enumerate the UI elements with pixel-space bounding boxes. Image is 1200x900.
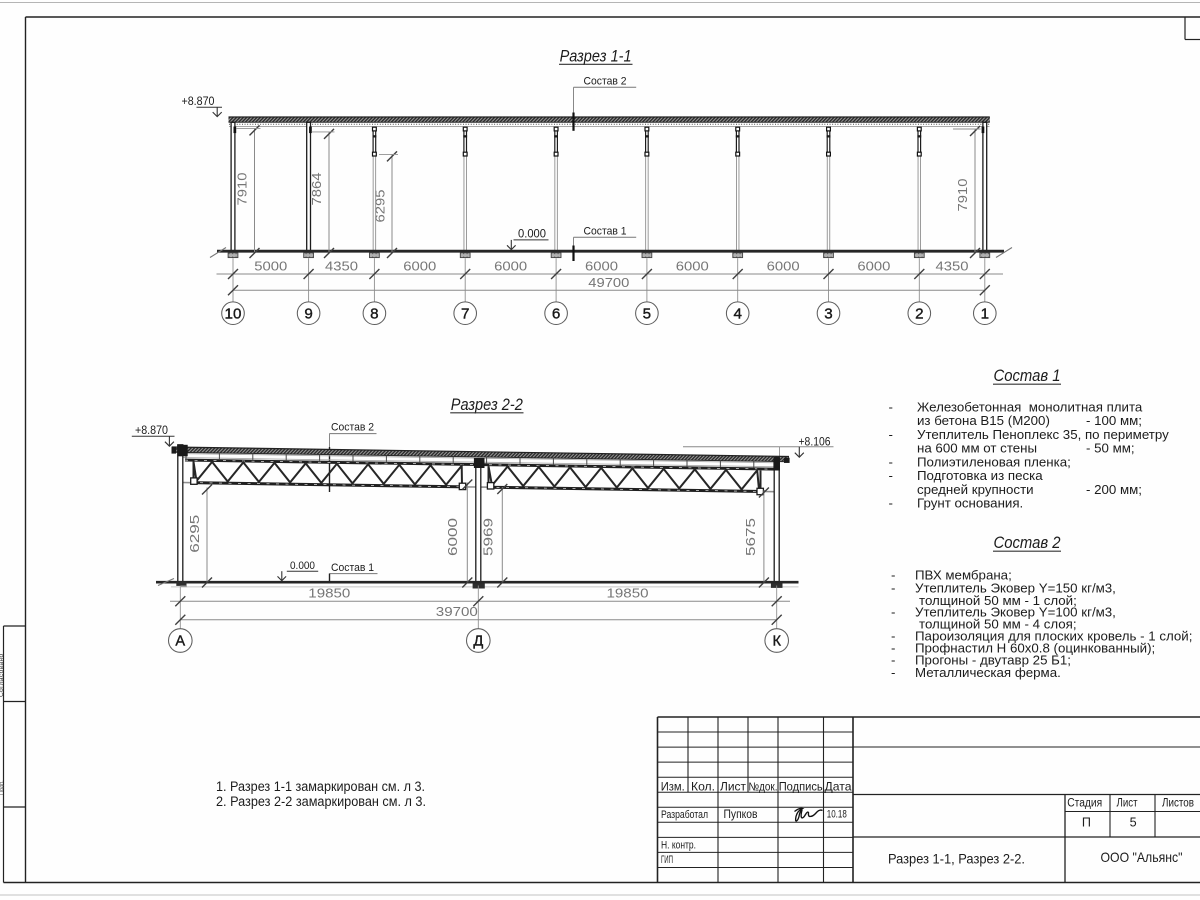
svg-text:из бетона В15 (М200): из бетона В15 (М200): [917, 413, 1050, 428]
svg-text:+8.106: +8.106: [799, 434, 831, 448]
svg-text:5969: 5969: [481, 518, 495, 556]
svg-text:-: -: [889, 468, 893, 483]
svg-text:6000: 6000: [767, 260, 800, 274]
svg-text:3: 3: [824, 306, 832, 323]
svg-text:- 100 мм;: - 100 мм;: [1086, 413, 1142, 428]
svg-text:5675: 5675: [744, 518, 758, 556]
svg-text:6000: 6000: [857, 260, 890, 274]
svg-text:Изм.: Изм.: [661, 780, 685, 793]
svg-text:6295: 6295: [374, 190, 388, 223]
svg-text:1: 1: [981, 306, 989, 323]
svg-text:К: К: [772, 634, 781, 650]
svg-text:4350: 4350: [936, 260, 969, 274]
svg-text:Лист: Лист: [720, 780, 747, 793]
svg-text:2: 2: [915, 306, 923, 323]
svg-text:ГИП: ГИП: [661, 854, 673, 866]
svg-text:- 50 мм;: - 50 мм;: [1086, 441, 1135, 456]
svg-text:Стадия: Стадия: [1067, 798, 1102, 810]
svg-text:А: А: [175, 634, 185, 650]
svg-text:0.000: 0.000: [290, 560, 315, 572]
svg-text:7: 7: [461, 306, 469, 323]
svg-text:39700: 39700: [436, 605, 478, 619]
svg-text:Разрез 2-2: Разрез 2-2: [451, 395, 524, 414]
svg-text:-: -: [889, 427, 893, 442]
svg-text:6000: 6000: [585, 260, 618, 274]
svg-text:Н. контр.: Н. контр.: [661, 840, 696, 852]
svg-text:Состав 2: Состав 2: [994, 533, 1061, 552]
svg-text:Металлическая ферма.: Металлическая ферма.: [915, 665, 1061, 680]
svg-text:-: -: [889, 496, 893, 511]
svg-text:Согласовано: Согласовано: [0, 654, 5, 697]
svg-text:6295: 6295: [188, 515, 202, 553]
svg-text:2. Разрез 2-2 замаркирован см.: 2. Разрез 2-2 замаркирован см. л 3.: [216, 794, 426, 809]
svg-text:4350: 4350: [325, 260, 358, 274]
svg-text:10: 10: [225, 306, 242, 323]
svg-text:+8.870: +8.870: [135, 423, 168, 437]
svg-text:7864: 7864: [310, 173, 324, 206]
svg-text:+8.870: +8.870: [182, 94, 215, 108]
svg-text:5: 5: [643, 306, 651, 323]
svg-text:-: -: [889, 400, 893, 415]
svg-text:19850: 19850: [308, 587, 350, 601]
svg-text:Листов: Листов: [1162, 798, 1194, 810]
svg-text:Состав 2: Состав 2: [331, 422, 374, 434]
svg-text:0.000: 0.000: [518, 227, 546, 240]
svg-text:Кол.: Кол.: [691, 780, 715, 793]
svg-text:Грунт основания.: Грунт основания.: [917, 496, 1023, 511]
svg-text:10.18: 10.18: [827, 809, 847, 821]
svg-text:8: 8: [370, 306, 378, 323]
svg-text:7910: 7910: [236, 173, 250, 206]
svg-text:ООО "Альянс": ООО "Альянс": [1101, 850, 1183, 865]
svg-text:Разрез 1-1: Разрез 1-1: [560, 47, 632, 66]
svg-text:-: -: [891, 580, 895, 595]
svg-text:Подп.: Подп.: [0, 780, 5, 795]
svg-text:9: 9: [304, 306, 312, 323]
svg-text:Разработал: Разработал: [661, 809, 708, 821]
svg-text:Состав 2: Состав 2: [584, 75, 627, 87]
svg-text:П: П: [1082, 815, 1091, 829]
svg-text:49700: 49700: [588, 276, 629, 290]
svg-text:- 200 мм;: - 200 мм;: [1086, 482, 1142, 497]
svg-text:5000: 5000: [254, 260, 287, 274]
svg-text:Подпись: Подпись: [779, 780, 823, 793]
svg-text:-: -: [891, 665, 895, 680]
svg-text:Разрез 1-1, Разрез 2-2.: Разрез 1-1, Разрез 2-2.: [888, 852, 1025, 867]
svg-text:Д: Д: [473, 634, 483, 650]
svg-text:6000: 6000: [403, 260, 436, 274]
svg-text:Лист: Лист: [1117, 798, 1139, 810]
svg-text:5: 5: [1130, 815, 1137, 829]
svg-text:Состав 1: Состав 1: [331, 562, 374, 574]
svg-text:19850: 19850: [607, 587, 649, 601]
svg-text:6000: 6000: [676, 260, 709, 274]
svg-text:6000: 6000: [494, 260, 527, 274]
svg-text:Дата: Дата: [825, 780, 853, 793]
svg-text:-: -: [891, 605, 895, 620]
svg-text:6: 6: [552, 306, 560, 323]
svg-text:7910: 7910: [956, 179, 970, 212]
svg-text:Пупков: Пупков: [724, 807, 758, 821]
svg-text:Состав 1: Состав 1: [584, 225, 627, 237]
svg-text:6000: 6000: [446, 518, 460, 556]
svg-text:№док.: №док.: [749, 780, 778, 793]
svg-text:1. Разрез 1-1 замаркирован см.: 1. Разрез 1-1 замаркирован см. л 3.: [216, 779, 425, 794]
svg-text:Состав 1: Состав 1: [994, 366, 1061, 385]
svg-text:4: 4: [733, 306, 741, 323]
